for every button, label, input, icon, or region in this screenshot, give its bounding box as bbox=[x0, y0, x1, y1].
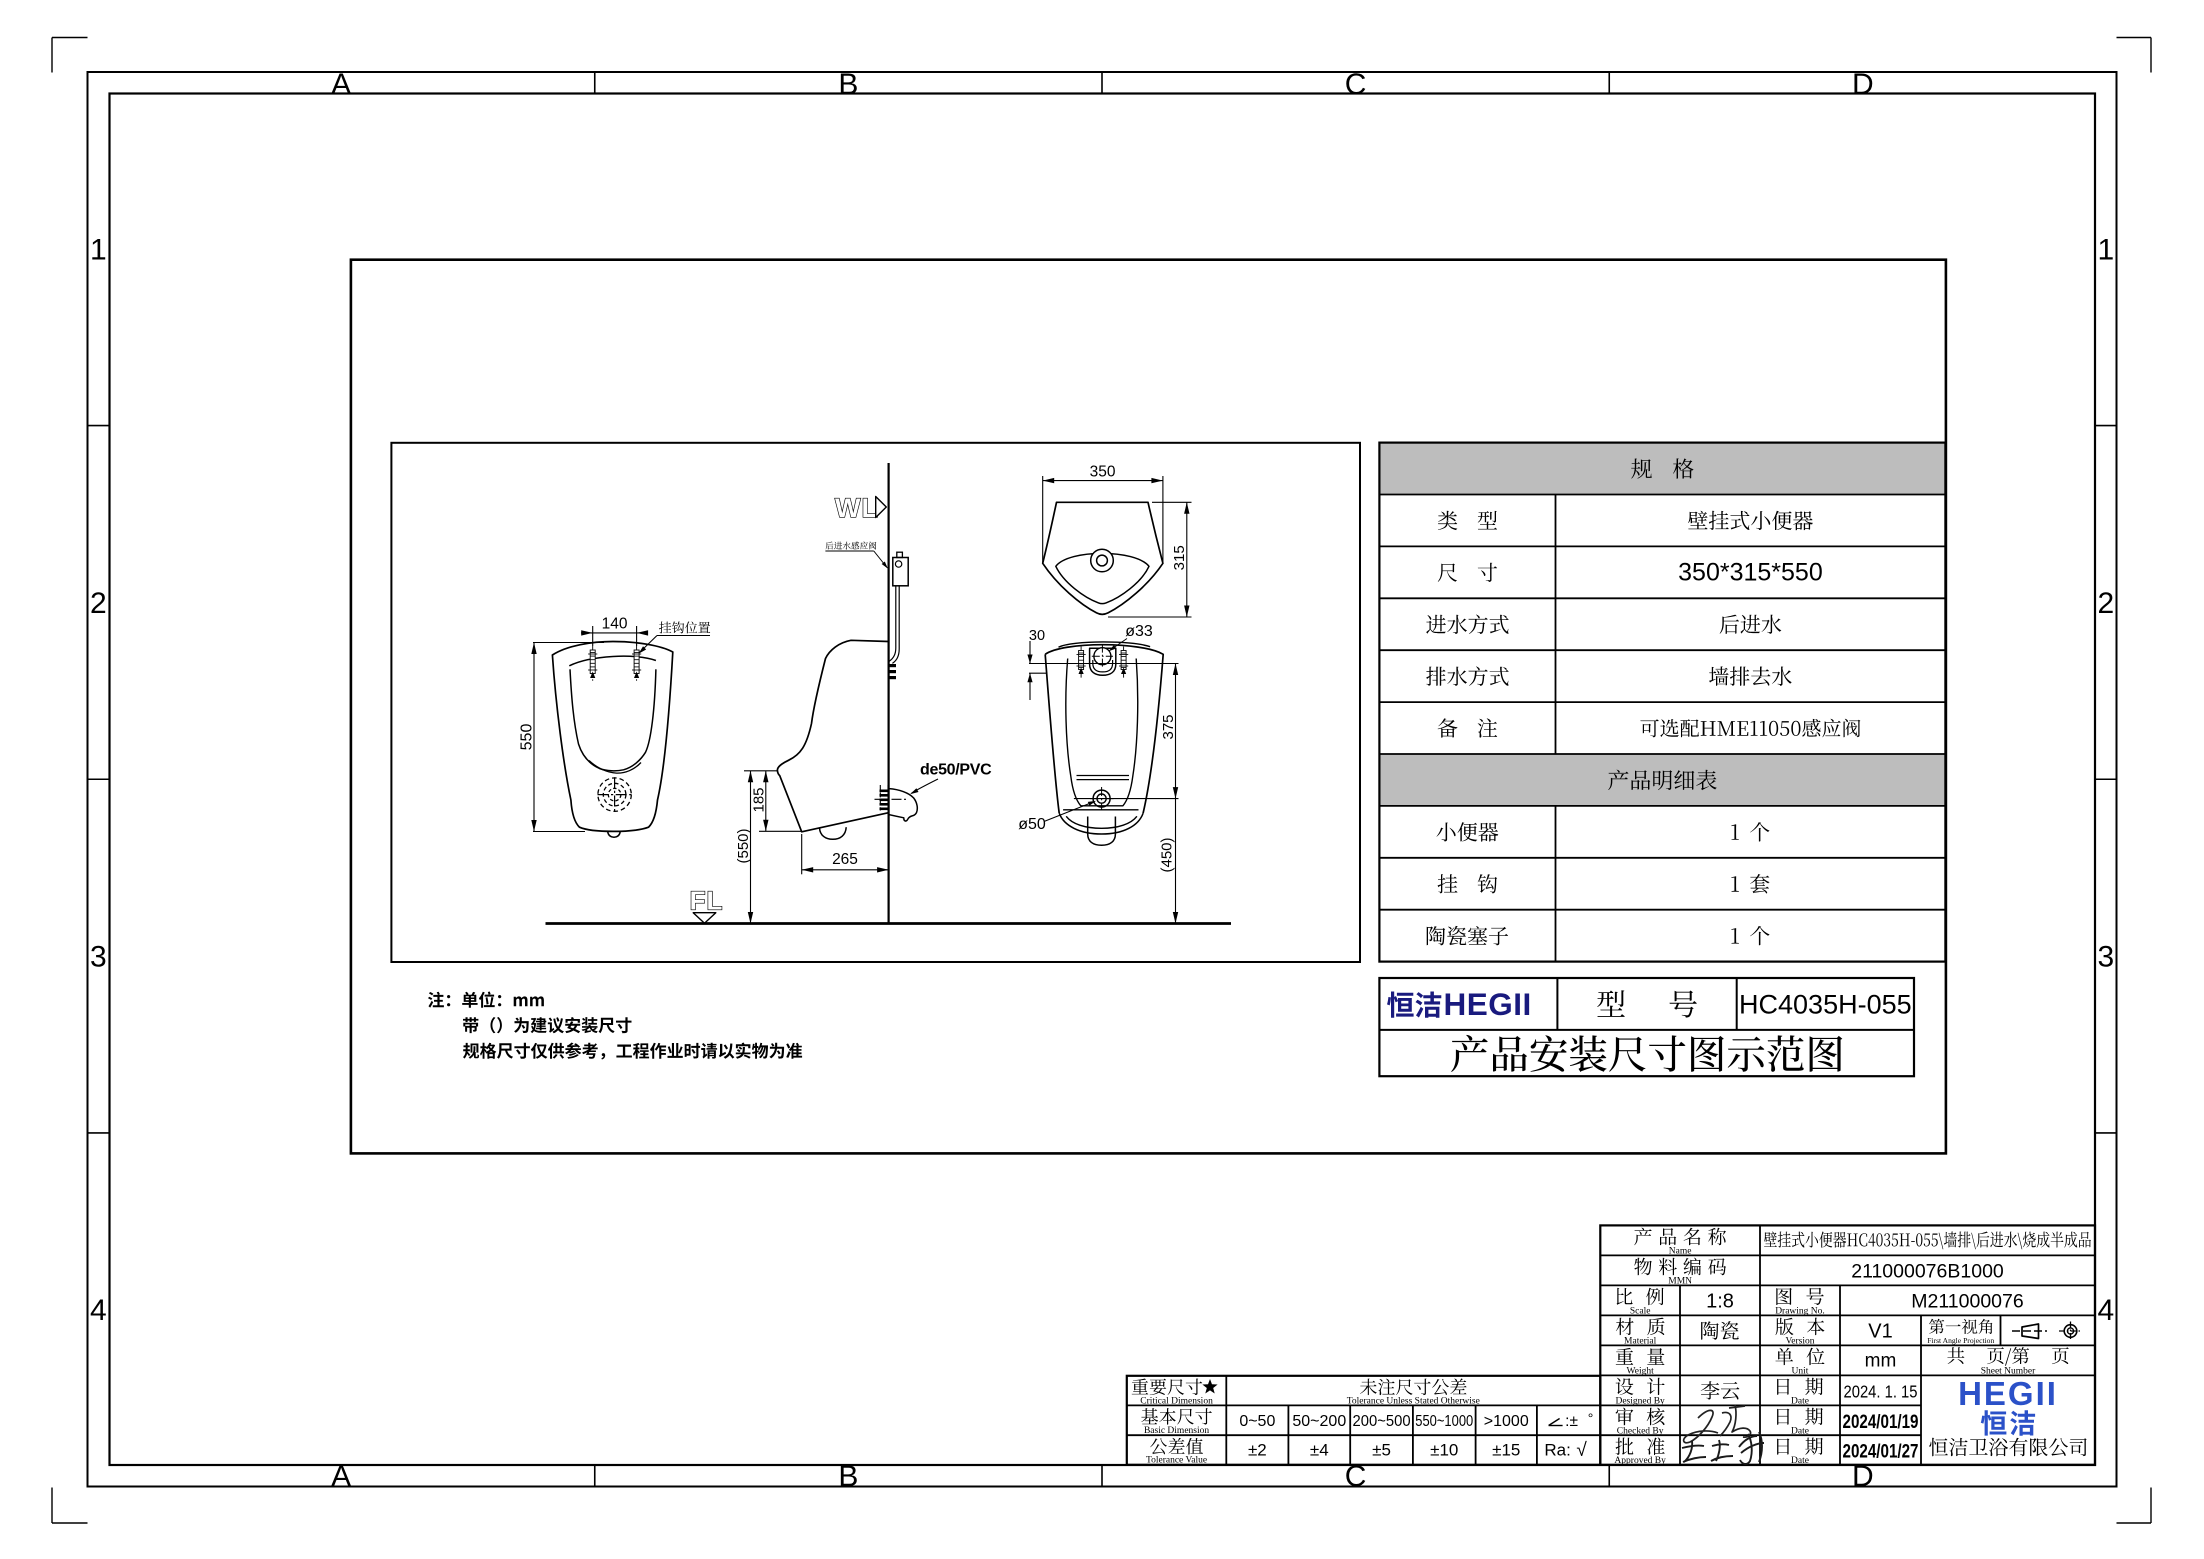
svg-text:√: √ bbox=[1576, 1440, 1587, 1461]
svg-text:315: 315 bbox=[1171, 545, 1188, 570]
svg-text:350*315*550: 350*315*550 bbox=[1678, 558, 1823, 586]
svg-text:185: 185 bbox=[750, 787, 767, 812]
svg-text:Date: Date bbox=[1791, 1396, 1809, 1406]
svg-text:ø33: ø33 bbox=[1125, 623, 1153, 640]
svg-text:211000076B1000: 211000076B1000 bbox=[1851, 1260, 2004, 1282]
svg-text:140: 140 bbox=[602, 616, 628, 633]
svg-text:>1000: >1000 bbox=[1484, 1413, 1529, 1430]
svg-text:A: A bbox=[331, 1460, 351, 1493]
svg-text:A: A bbox=[331, 68, 351, 101]
svg-text:Version: Version bbox=[1785, 1336, 1814, 1346]
svg-text:D: D bbox=[1852, 68, 1874, 101]
svg-text:B: B bbox=[838, 68, 858, 101]
svg-text:(550): (550) bbox=[735, 828, 752, 863]
svg-text:Designed By: Designed By bbox=[1615, 1396, 1665, 1406]
svg-text:±10: ±10 bbox=[1430, 1441, 1458, 1460]
svg-text:MMN: MMN bbox=[1668, 1276, 1692, 1286]
svg-text:550~1000: 550~1000 bbox=[1415, 1413, 1473, 1430]
svg-text:3: 3 bbox=[2097, 941, 2114, 974]
svg-text:350: 350 bbox=[1090, 464, 1116, 481]
svg-text:HC4035H-055: HC4035H-055 bbox=[1739, 990, 1912, 1020]
svg-text:±4: ±4 bbox=[1310, 1441, 1329, 1460]
svg-text::±: :± bbox=[1565, 1413, 1578, 1430]
svg-text:(450): (450) bbox=[1158, 837, 1175, 872]
svg-text:1:8: 1:8 bbox=[1706, 1290, 1734, 1312]
svg-text:de50/PVC: de50/PVC bbox=[920, 762, 992, 779]
svg-text:Name: Name bbox=[1669, 1246, 1692, 1256]
svg-text:2: 2 bbox=[2097, 587, 2114, 620]
svg-text:±5: ±5 bbox=[1372, 1441, 1391, 1460]
svg-text:3: 3 bbox=[90, 941, 107, 974]
svg-text:HEGII: HEGII bbox=[1444, 986, 1532, 1022]
svg-text:C: C bbox=[1345, 68, 1367, 101]
svg-text:mm: mm bbox=[1865, 1350, 1897, 1371]
svg-text:Unit: Unit bbox=[1792, 1366, 1809, 1376]
svg-text:Ra:: Ra: bbox=[1544, 1441, 1570, 1460]
svg-text:M211000076: M211000076 bbox=[1911, 1290, 2023, 1312]
svg-text:550: 550 bbox=[519, 724, 536, 751]
svg-text:4: 4 bbox=[2097, 1294, 2114, 1327]
svg-text:2: 2 bbox=[90, 587, 107, 620]
svg-text:375: 375 bbox=[1160, 714, 1177, 739]
svg-text:Basic Dimension: Basic Dimension bbox=[1144, 1426, 1209, 1436]
svg-text:Drawing No.: Drawing No. bbox=[1775, 1306, 1825, 1316]
svg-text:265: 265 bbox=[832, 851, 858, 868]
svg-text:WL: WL bbox=[835, 493, 879, 523]
svg-text:200~500: 200~500 bbox=[1353, 1413, 1411, 1430]
svg-text:Material: Material bbox=[1624, 1336, 1657, 1346]
svg-text:FL: FL bbox=[690, 886, 724, 916]
svg-text:Approved By: Approved By bbox=[1614, 1456, 1666, 1466]
svg-text:30: 30 bbox=[1029, 628, 1045, 644]
svg-text:Date: Date bbox=[1791, 1426, 1809, 1436]
svg-text:Date: Date bbox=[1791, 1456, 1809, 1466]
svg-text:2024. 1. 15: 2024. 1. 15 bbox=[1844, 1381, 1918, 1401]
svg-text:4: 4 bbox=[90, 1294, 107, 1327]
svg-text:Scale: Scale bbox=[1630, 1306, 1651, 1316]
svg-text:°: ° bbox=[1588, 1410, 1594, 1426]
svg-text:1: 1 bbox=[90, 233, 107, 266]
svg-text:1: 1 bbox=[2097, 233, 2114, 266]
svg-text:2024/01/19: 2024/01/19 bbox=[1843, 1411, 1919, 1433]
svg-text:50~200: 50~200 bbox=[1292, 1413, 1346, 1430]
svg-text:Weight: Weight bbox=[1627, 1366, 1655, 1376]
svg-text:ø50: ø50 bbox=[1018, 816, 1046, 833]
svg-text:First Angle Projection: First Angle Projection bbox=[1927, 1336, 1994, 1345]
svg-text:2024/01/27: 2024/01/27 bbox=[1843, 1441, 1919, 1463]
svg-text:B: B bbox=[838, 1460, 858, 1493]
svg-text:Tolerance Value: Tolerance Value bbox=[1146, 1456, 1207, 1466]
svg-text:0~50: 0~50 bbox=[1239, 1413, 1275, 1430]
svg-text:±15: ±15 bbox=[1492, 1441, 1520, 1460]
svg-text:Tolerance Unless Stated Otherw: Tolerance Unless Stated Otherwise bbox=[1347, 1396, 1480, 1406]
svg-text:Critical Dimension: Critical Dimension bbox=[1140, 1396, 1213, 1406]
svg-text:Checked By: Checked By bbox=[1617, 1426, 1664, 1436]
svg-text:V1: V1 bbox=[1868, 1320, 1892, 1342]
svg-text:±2: ±2 bbox=[1248, 1441, 1267, 1460]
svg-text:HEGII: HEGII bbox=[1958, 1375, 2058, 1412]
